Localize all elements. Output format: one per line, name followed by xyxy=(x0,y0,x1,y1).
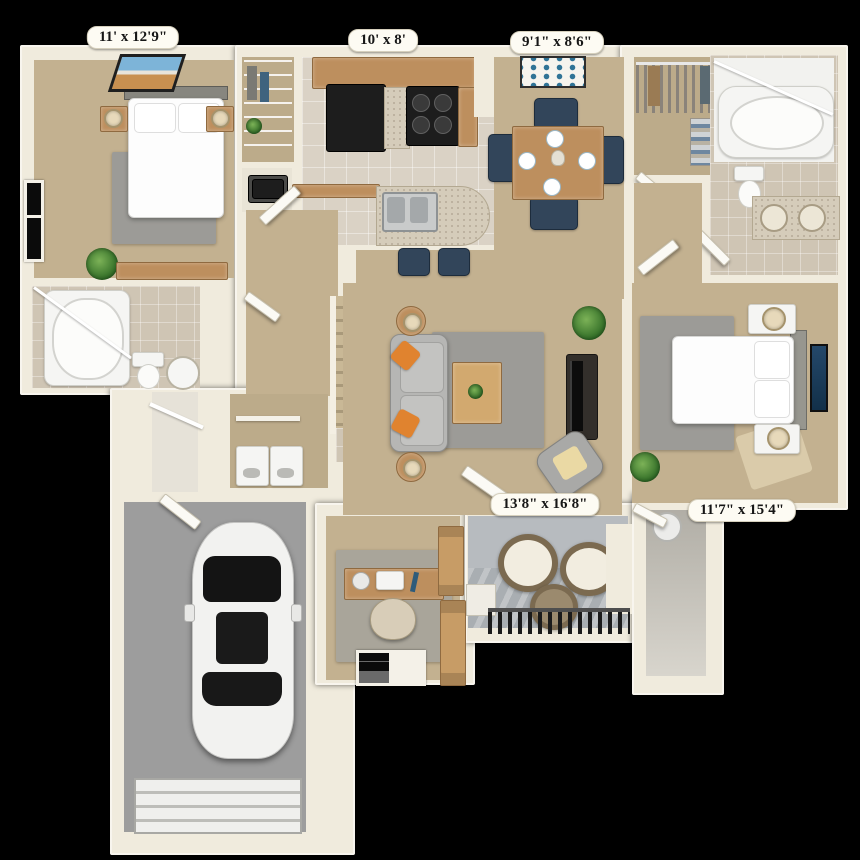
toilet-tank xyxy=(734,166,764,181)
centerpiece xyxy=(551,150,565,166)
hanging-clothes xyxy=(700,66,710,104)
table-lamp xyxy=(104,109,123,128)
car-mirror xyxy=(184,604,195,622)
pillow xyxy=(754,380,790,418)
table-lamp xyxy=(403,313,422,332)
car-rear-window xyxy=(203,556,281,602)
bookshelf xyxy=(438,526,464,596)
patio-railing xyxy=(488,608,630,634)
sink-basin xyxy=(410,197,428,223)
refrigerator xyxy=(326,84,386,152)
window-mullion xyxy=(24,215,44,218)
pillow xyxy=(134,103,176,133)
washer-door xyxy=(243,468,260,478)
wall-art-dining xyxy=(520,56,586,88)
stove-burner xyxy=(434,116,452,134)
half-wall-cap xyxy=(292,184,380,198)
houseplant xyxy=(630,452,660,482)
stove-burner xyxy=(412,116,430,134)
kitchen-dining-wall xyxy=(474,57,494,117)
dryer xyxy=(270,446,303,486)
dining-chair xyxy=(530,196,578,230)
television xyxy=(570,361,583,431)
vanity-sink xyxy=(760,204,788,232)
stove-burner xyxy=(434,94,452,112)
houseplant xyxy=(246,118,262,134)
floorplan-canvas: 11' x 12'9" 10' x 8' 9'1" x 8'6" 13'8" x… xyxy=(0,0,860,860)
houseplant xyxy=(86,248,118,280)
houseplant xyxy=(468,384,483,399)
table-lamp xyxy=(762,307,786,331)
hanging-clothes xyxy=(648,66,660,106)
dim-label-master: 11'7" x 15'4" xyxy=(688,499,796,522)
patio-chair xyxy=(498,534,558,592)
dinner-plate xyxy=(543,178,561,196)
dryer-door xyxy=(277,468,294,478)
washer xyxy=(236,446,269,486)
wall-art-bedroom2 xyxy=(108,54,186,92)
table-lamp xyxy=(767,427,790,450)
pedestal-sink xyxy=(166,356,200,390)
patio-side-wall xyxy=(606,524,632,614)
desk-clock xyxy=(352,572,370,590)
houseplant xyxy=(572,306,606,340)
table-lamp xyxy=(403,459,422,478)
desk-chair xyxy=(370,598,416,640)
window-office xyxy=(356,650,426,686)
table-lamp xyxy=(211,109,230,128)
television xyxy=(252,179,284,199)
pillow xyxy=(754,341,790,379)
dim-label-dining: 9'1" x 8'6" xyxy=(510,31,604,54)
window-bedroom2 xyxy=(24,180,44,262)
vanity-sink xyxy=(798,204,826,232)
bookshelf xyxy=(440,600,466,686)
wall-art-master xyxy=(810,344,828,412)
car-windshield xyxy=(202,672,282,706)
range-stove xyxy=(406,86,460,146)
laundry-shelf xyxy=(236,416,300,421)
toilet-bowl xyxy=(137,364,160,389)
computer-monitor xyxy=(376,571,404,590)
stove-burner xyxy=(412,94,430,112)
dinner-plate xyxy=(518,152,536,170)
dresser xyxy=(116,262,228,280)
sink-basin xyxy=(387,197,405,223)
bar-stool xyxy=(438,248,470,276)
bar-stool xyxy=(398,248,430,276)
dim-label-bedroom2: 11' x 12'9" xyxy=(87,26,179,49)
garage-door xyxy=(134,778,302,834)
dim-label-kitchen: 10' x 8' xyxy=(348,29,418,52)
hanging-clothes xyxy=(247,66,257,100)
dim-label-living: 13'8" x 16'8" xyxy=(491,493,600,516)
hanging-clothes xyxy=(260,72,269,102)
dinner-plate xyxy=(546,130,564,148)
car-mirror xyxy=(291,604,302,622)
car-sunroof xyxy=(216,612,268,664)
dinner-plate xyxy=(578,152,596,170)
